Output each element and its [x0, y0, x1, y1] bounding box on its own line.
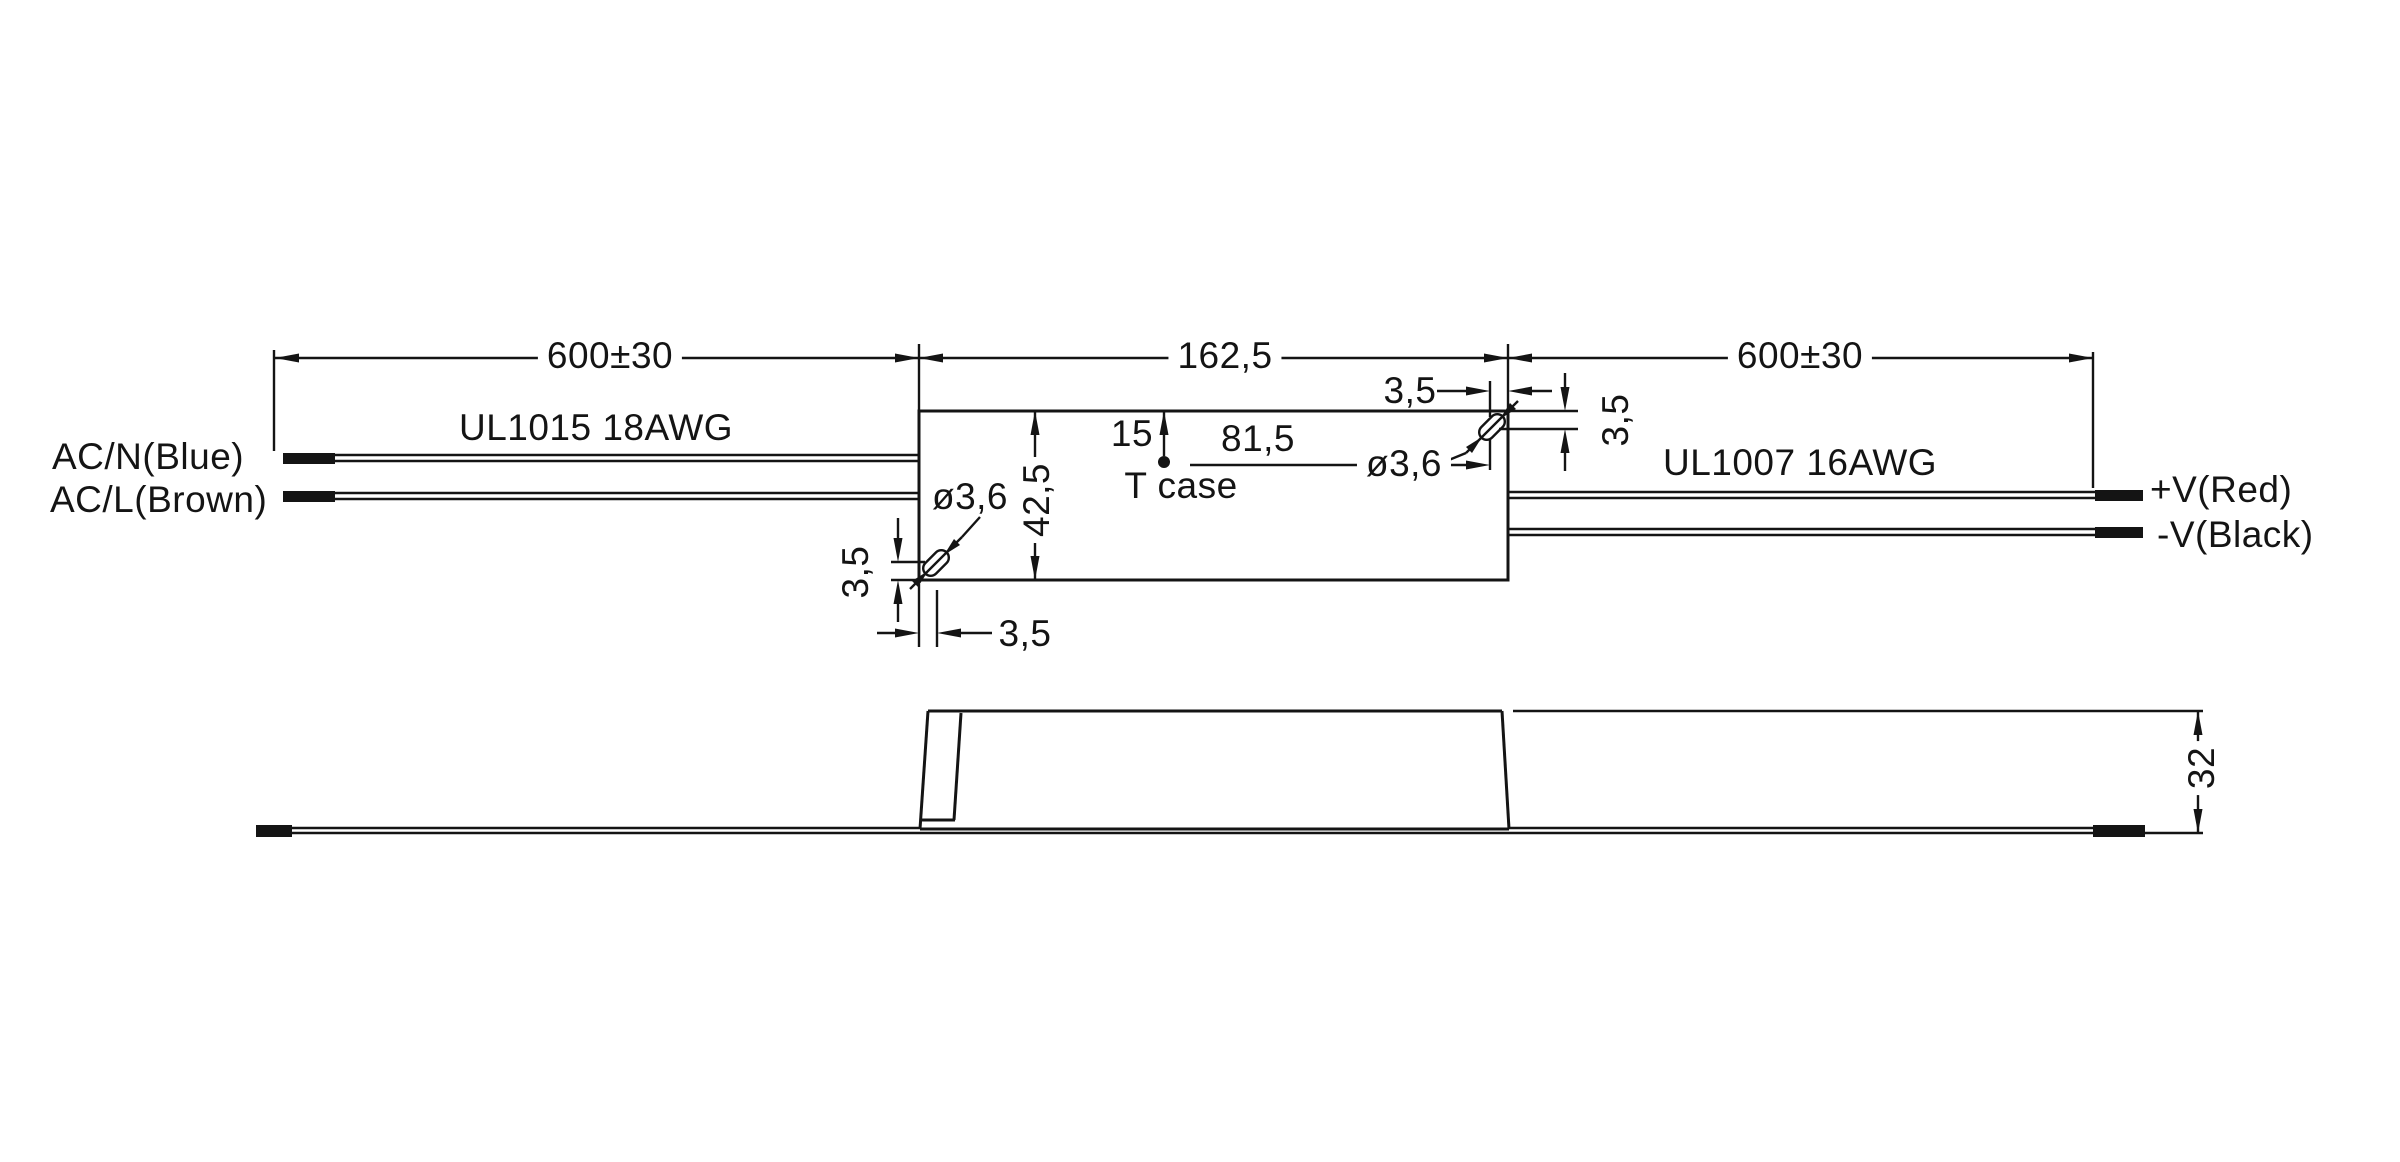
dimension-case-width: 42,5: [1017, 457, 1057, 543]
dimension-case-height: 32: [2182, 741, 2222, 795]
wire-spec-input: UL1015 18AWG: [459, 408, 733, 448]
dimension-hole-offset-x-left: 3,5: [999, 614, 1052, 654]
dimension-hole-offset-y-left: 3,5: [836, 546, 876, 599]
side-view-height-dimension: [1513, 711, 2203, 833]
dimension-hole-diameter-left: ø3,6: [932, 477, 1008, 517]
dimension-output-wire-length: 600±30: [1728, 336, 1872, 376]
mechanical-drawing-canvas: AC/N(Blue) AC/L(Brown) UL1015 18AWG 600±…: [0, 0, 2400, 1162]
input-wire-tinned-end: [283, 453, 335, 464]
wire-label-v-plus: +V(Red): [2150, 470, 2292, 510]
input-wire-tinned-end-2: [283, 491, 335, 502]
dimension-case-length: 162,5: [1168, 336, 1281, 376]
wire-label-ac-l: AC/L(Brown): [50, 480, 267, 520]
side-wire-tinned-end-right: [2093, 825, 2145, 837]
input-wires: [283, 453, 919, 502]
dimension-hole-offset-y-right: 3,5: [1596, 394, 1636, 447]
wire-label-v-minus: -V(Black): [2157, 515, 2314, 555]
tcase-label: T case: [1124, 466, 1237, 506]
dimension-hole-offset-x-right: 3,5: [1384, 371, 1437, 411]
dimension-input-wire-length: 600±30: [538, 336, 682, 376]
side-wire-tinned-end-left: [256, 825, 292, 837]
wire-spec-output: UL1007 16AWG: [1663, 443, 1937, 483]
output-wires: [1508, 490, 2143, 538]
dimension-hole-diameter-right: ø3,6: [1357, 444, 1451, 484]
output-wire-tinned-end: [2095, 490, 2143, 501]
wire-label-ac-n: AC/N(Blue): [52, 437, 244, 477]
output-wire-tinned-end-2: [2095, 527, 2143, 538]
dimension-drawing-linework: [0, 0, 2400, 1162]
dimension-tcase-from-top: 15: [1111, 414, 1153, 454]
dimension-tcase-to-hole: 81,5: [1221, 419, 1295, 459]
side-view-outline: [920, 711, 1509, 829]
side-view-wire-baseline: [256, 825, 2203, 837]
